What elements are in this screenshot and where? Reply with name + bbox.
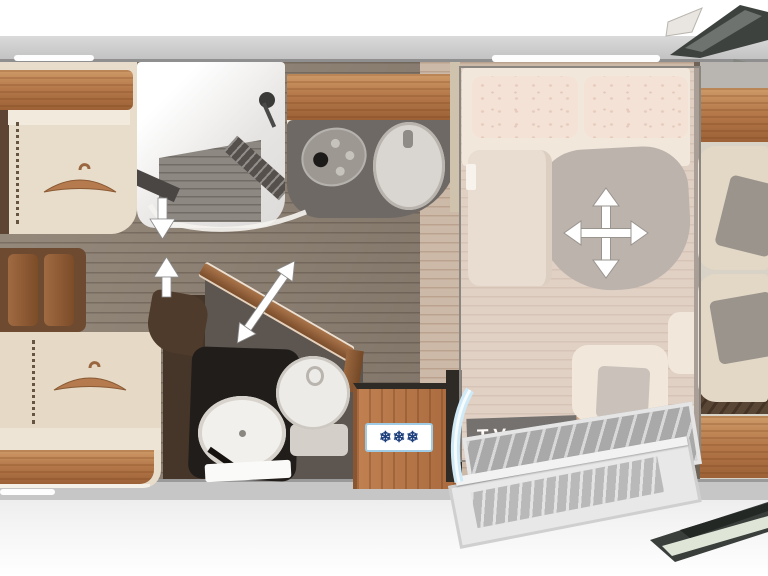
toilet-flush-dot bbox=[239, 430, 246, 437]
cab-sideboard-top bbox=[700, 88, 768, 142]
motorhome-floorplan: ❄ ❄ ❄ TV bbox=[0, 0, 768, 576]
faucet-icon bbox=[403, 130, 413, 148]
shelf-plank bbox=[44, 254, 74, 326]
snowflake-icon: ❄ bbox=[379, 430, 392, 445]
toilet bbox=[198, 396, 286, 470]
cab-dashboard-strip bbox=[700, 62, 768, 88]
burner bbox=[344, 150, 355, 161]
wardrobe-base-cushion bbox=[0, 428, 161, 450]
rear-wardrobe-top bbox=[0, 62, 137, 234]
wardrobe-base-line bbox=[0, 484, 150, 488]
overhead-cabinet bbox=[0, 70, 133, 110]
basin-drain bbox=[306, 366, 324, 386]
window-strip bbox=[14, 55, 94, 61]
snowflake-icon: ❄ bbox=[393, 430, 406, 445]
burner bbox=[330, 138, 341, 149]
window-strip bbox=[0, 489, 55, 495]
kitchen-sink bbox=[373, 122, 445, 210]
fridge-freezer-label: ❄ ❄ ❄ bbox=[365, 423, 433, 452]
cab-sideboard-bottom bbox=[700, 416, 768, 478]
wardrobe-shelf bbox=[8, 110, 130, 125]
shower-room bbox=[137, 62, 285, 228]
cab-seat-cushion bbox=[709, 291, 768, 365]
wardrobe-door-split bbox=[16, 122, 19, 224]
wardrobe-door-split bbox=[32, 340, 35, 424]
wing-mirror-top-icon bbox=[630, 0, 768, 60]
shelf-unit bbox=[0, 248, 86, 332]
hob-icon bbox=[294, 120, 375, 195]
kitchen-overhead-cabinet bbox=[287, 74, 455, 125]
wing-mirror-bottom-icon bbox=[620, 498, 768, 568]
wardrobe-front-wood bbox=[0, 450, 154, 484]
hob-knob bbox=[311, 150, 330, 169]
snowflake-icon: ❄ bbox=[406, 430, 419, 445]
rear-wardrobe-bottom bbox=[0, 332, 161, 488]
bed-move-overlay bbox=[459, 66, 701, 462]
washbasin bbox=[276, 356, 350, 430]
shelf-plank bbox=[8, 254, 38, 326]
burner bbox=[335, 166, 346, 177]
hanger-icon bbox=[50, 360, 130, 394]
hanger-icon bbox=[40, 162, 120, 196]
